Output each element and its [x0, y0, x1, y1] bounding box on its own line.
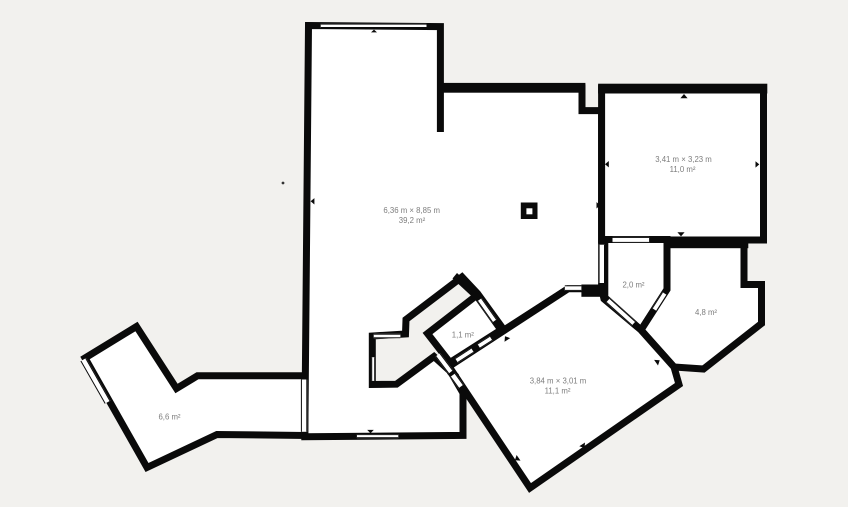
svg-text:6,6 m²: 6,6 m²	[158, 412, 180, 421]
svg-text:6,36 m × 8,85 m: 6,36 m × 8,85 m	[383, 206, 440, 215]
svg-text:2,0 m²: 2,0 m²	[622, 280, 644, 289]
svg-text:3,41 m × 3,23 m: 3,41 m × 3,23 m	[655, 155, 712, 164]
svg-text:1,1 m²: 1,1 m²	[452, 331, 474, 340]
svg-text:39,2 m²: 39,2 m²	[399, 216, 426, 225]
svg-text:11,0 m²: 11,0 m²	[670, 165, 696, 174]
svg-text:3,84 m × 3,01 m: 3,84 m × 3,01 m	[530, 376, 587, 385]
svg-text:11,1 m²: 11,1 m²	[545, 386, 571, 395]
svg-text:4,8 m²: 4,8 m²	[695, 308, 717, 317]
